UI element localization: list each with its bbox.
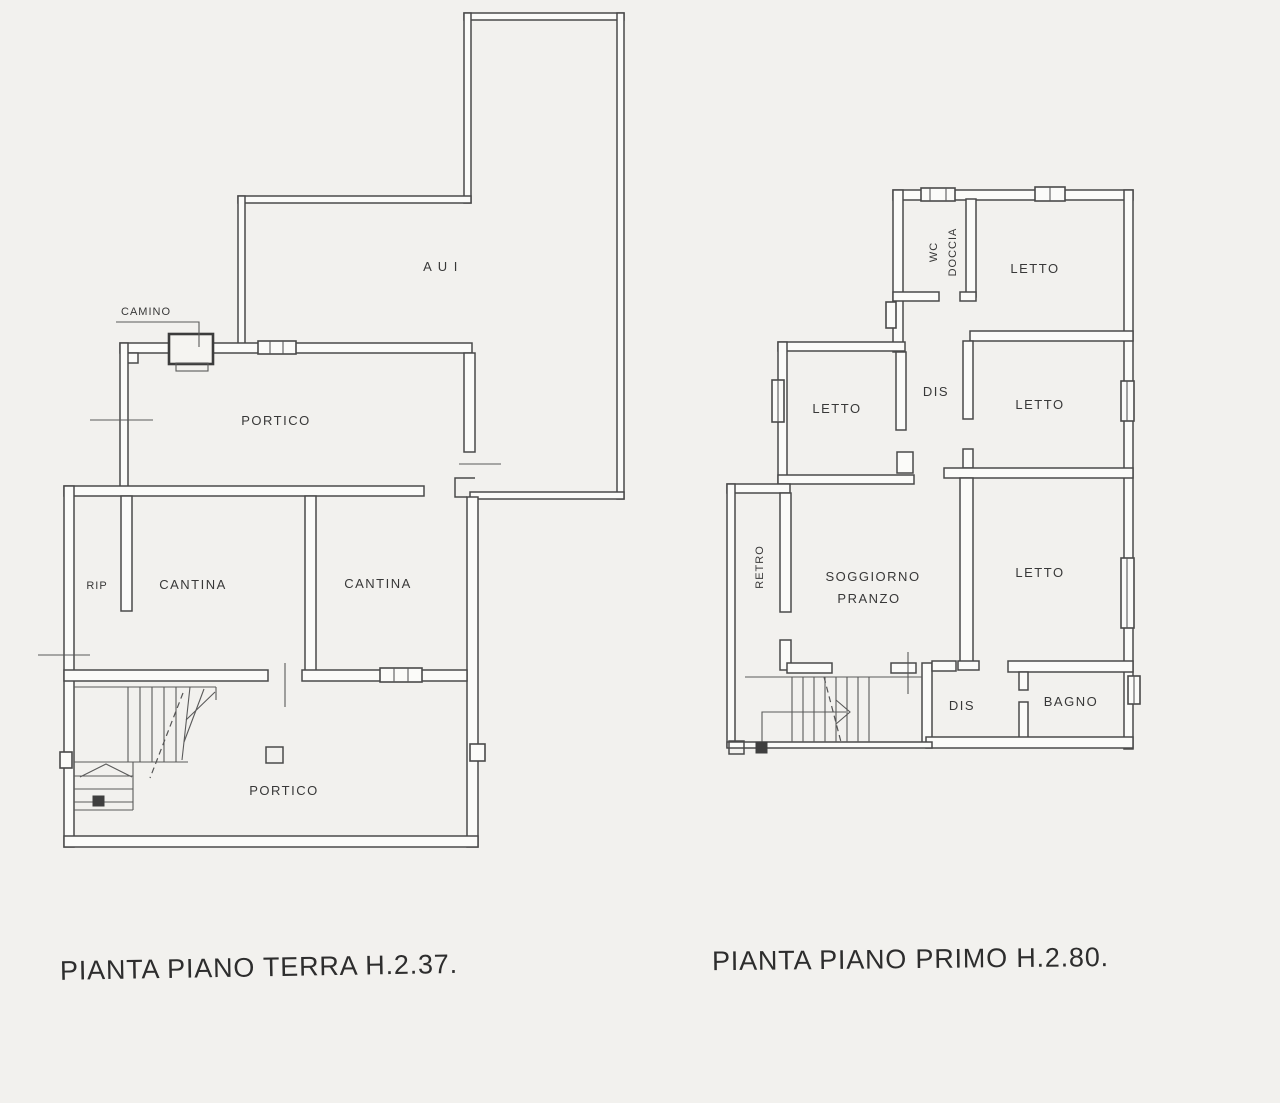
ground-floor-walls: [64, 13, 624, 847]
room-label-dis-upper: DIS: [923, 384, 949, 399]
room-label-doccia: DOCCIA: [947, 228, 959, 277]
room-label-wc: WC: [928, 242, 940, 262]
room-label-letto-top: LETTO: [1010, 261, 1059, 276]
room-label-portico-lower: PORTICO: [249, 783, 319, 798]
room-label-portico-upper: PORTICO: [241, 413, 311, 428]
scanned-floorplan-sheet: A U I CAMINO PORTICO RIP CANTINA CANTINA…: [0, 0, 1280, 1103]
first-floor-walls: [727, 190, 1133, 749]
room-label-dis-lower: DIS: [949, 698, 975, 713]
stair-direction-line: [762, 712, 846, 742]
room-label-rip: RIP: [86, 580, 107, 592]
first-floor-plan: WC DOCCIA LETTO DIS LETTO LETTO RETRO SO…: [727, 187, 1140, 754]
room-label-letto-lower: LETTO: [1015, 565, 1064, 580]
room-label-retro: RETRO: [754, 545, 766, 589]
room-label-letto-mid-right: LETTO: [1015, 397, 1064, 412]
room-label-aui: A U I: [423, 259, 459, 274]
caption-first-floor: PIANTA PIANO PRIMO H.2.80.: [712, 942, 1109, 976]
caption-ground-floor: PIANTA PIANO TERRA H.2.37.: [60, 949, 458, 986]
stair-direction-chevron: [80, 764, 132, 777]
floor-plan-drawing: A U I CAMINO PORTICO RIP CANTINA CANTINA…: [0, 0, 1280, 1103]
room-label-soggiorno: SOGGIORNO: [825, 569, 920, 584]
room-label-pranzo: PRANZO: [837, 591, 900, 606]
room-label-cantina-right: CANTINA: [344, 576, 412, 591]
room-label-cantina-left: CANTINA: [159, 577, 227, 592]
staircase-ground: [74, 687, 216, 810]
ground-floor-room-labels: A U I CAMINO PORTICO RIP CANTINA CANTINA…: [86, 259, 459, 798]
portico-pillar: [266, 747, 283, 763]
stair-post-marker: [756, 742, 767, 753]
section-tick-marks: [38, 420, 501, 707]
stair-post-marker: [93, 796, 104, 806]
room-label-camino: CAMINO: [121, 306, 171, 318]
stair-cut-line: [150, 693, 183, 778]
ground-floor-plan: A U I CAMINO PORTICO RIP CANTINA CANTINA…: [38, 13, 624, 847]
room-label-bagno: BAGNO: [1044, 694, 1098, 709]
room-label-letto-mid-left: LETTO: [812, 401, 861, 416]
stair-cut-line: [824, 677, 841, 742]
